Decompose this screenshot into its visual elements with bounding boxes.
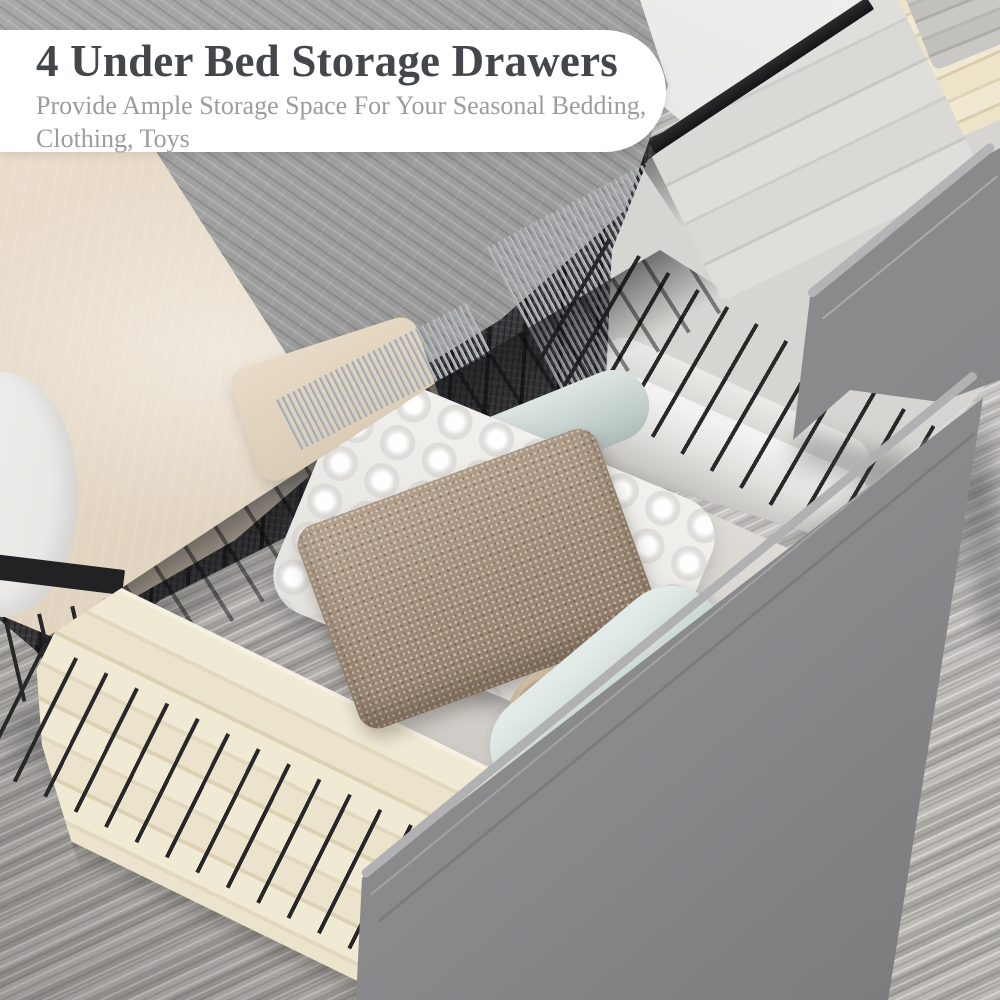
callout-subtitle: Provide Ample Storage Space For Your Sea… — [36, 89, 642, 122]
callout-subtitle-line2: Clothing, Toys — [36, 122, 190, 155]
feature-callout-card: 4 Under Bed Storage Drawers Provide Ampl… — [0, 30, 666, 152]
callout-title: 4 Under Bed Storage Drawers — [36, 38, 642, 85]
product-photo: 4 Under Bed Storage Drawers Provide Ampl… — [0, 0, 1000, 1000]
callout-subtitle-line1: Provide Ample Storage Space For Your Sea… — [36, 89, 646, 122]
